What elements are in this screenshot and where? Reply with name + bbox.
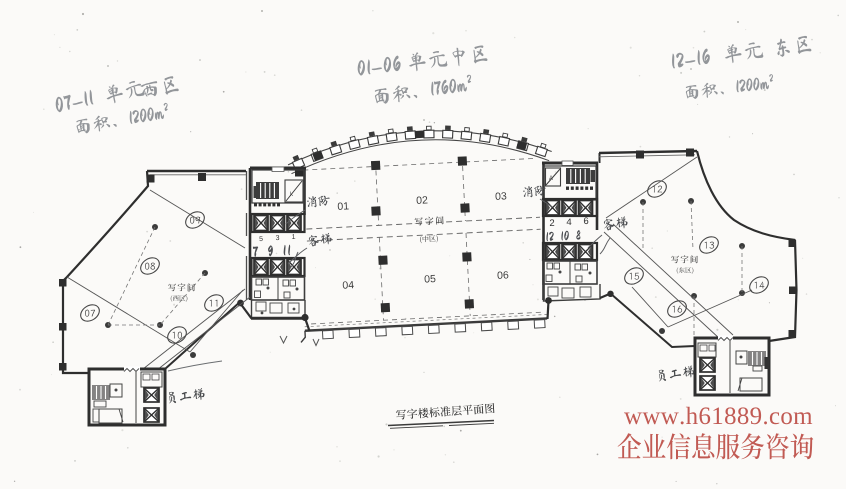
svg-text:A: A [549,176,553,182]
